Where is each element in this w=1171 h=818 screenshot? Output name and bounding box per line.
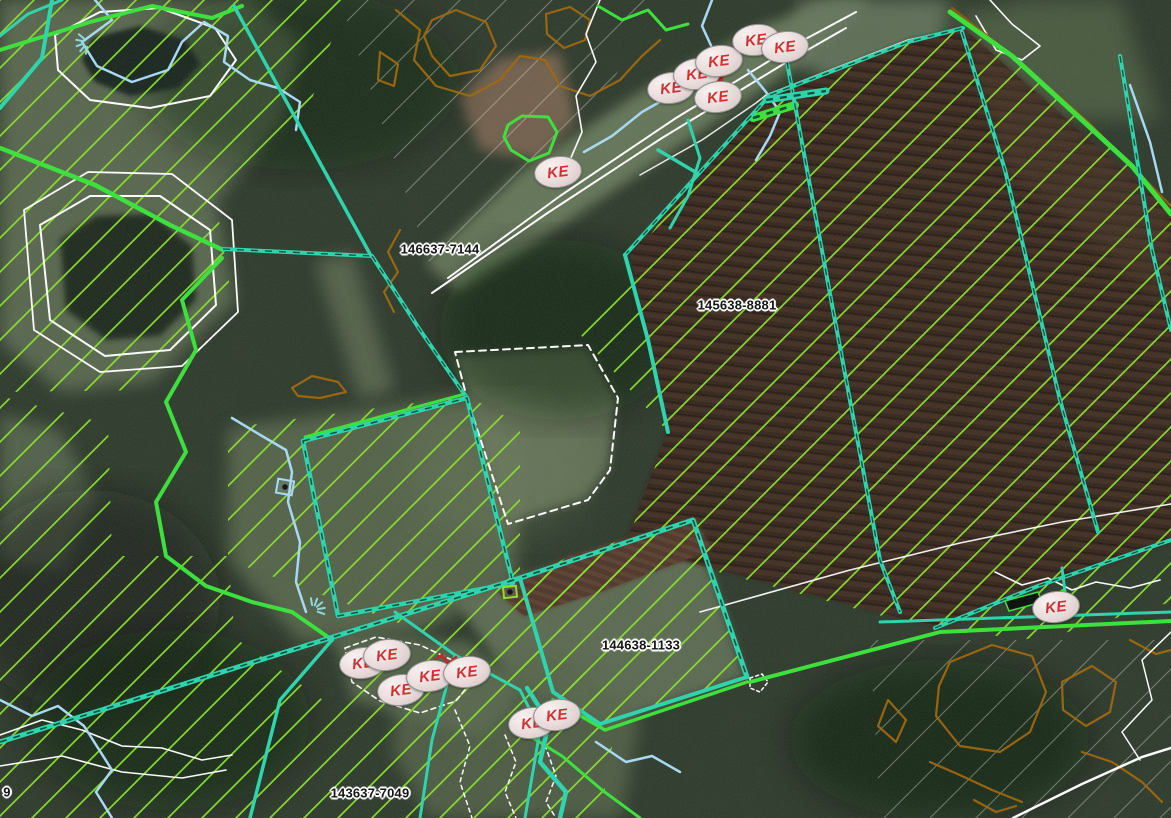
map-viewport[interactable]: 146637-7144145638-8881144638-1133143637-… xyxy=(0,0,1171,818)
aerial-map-canvas xyxy=(0,0,1171,818)
